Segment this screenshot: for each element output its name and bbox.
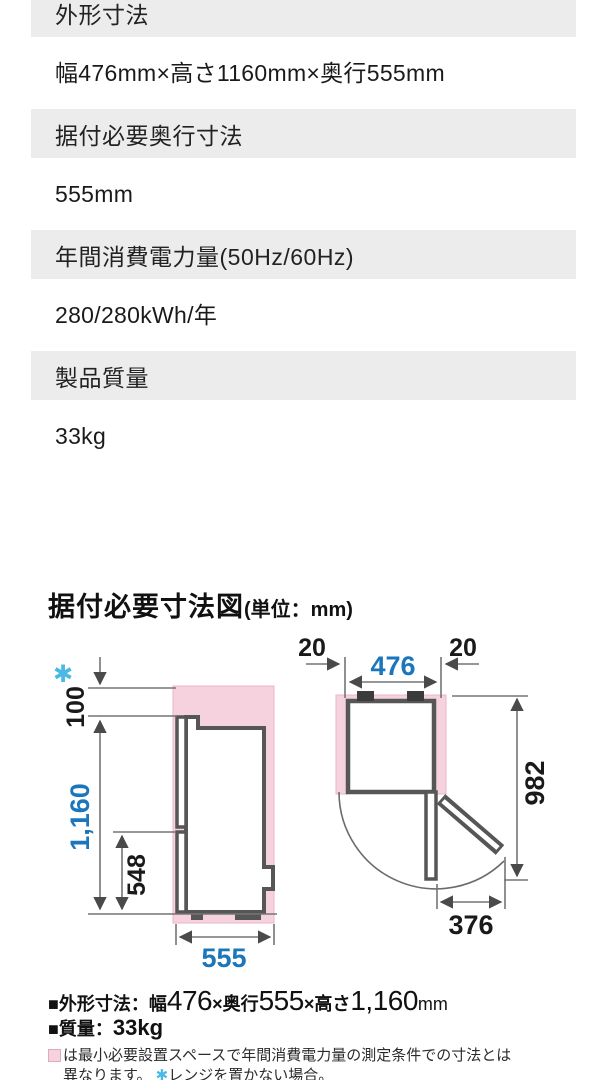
footer-dim-label: ■外形寸法：幅 [48,990,167,1016]
diagram-title: 据付必要寸法図 (単位：mm) [0,585,607,622]
fridge-top-cabinet [348,701,434,792]
fridge-side-door-upper [177,717,186,827]
dim-label-20-right: 20 [449,634,477,662]
footer-dim-sep2: ×高さ [304,990,351,1016]
diagram-footer: ■外形寸法：幅476×奥行555×高さ1,160mm ■質量：33kg は最小必… [0,985,607,1080]
spec-label-install-depth: 据付必要奥行寸法 [31,109,576,158]
rear-spacer-left [357,691,374,701]
note-asterisk: ✱ [156,1067,169,1080]
spec-row: 年間消費電力量(50Hz/60Hz) 280/280kWh/年 [0,230,607,351]
door-open-90 [426,792,436,879]
pink-legend-swatch [48,1049,61,1062]
footer-dim-unit: mm [418,994,448,1015]
dim-label-548: 548 [123,854,151,896]
note-line1: は最小必要設置スペースで年間消費電力量の測定条件での寸法とは [63,1047,511,1064]
note-line2-post: レンジを置かない場合。 [168,1067,333,1080]
door-open-135-inner [443,801,498,848]
footer-dimensions: ■外形寸法：幅476×奥行555×高さ1,160mm [48,985,607,1015]
footer-dim-sep1: ×奥行 [212,990,259,1016]
dim-label-376: 376 [448,910,493,940]
spec-table: 外形寸法 幅476mm×高さ1160mm×奥行555mm 据付必要奥行寸法 55… [0,0,607,472]
top-view: 20 20 476 982 376 [298,634,550,940]
spec-row: 外形寸法 幅476mm×高さ1160mm×奥行555mm [0,0,607,109]
footer-dim-depth: 555 [259,985,304,1017]
rear-spacer-right [407,691,424,701]
footer-dim-height: 1,160 [350,985,418,1017]
footer-weight: ■質量：33kg [48,1015,607,1042]
fridge-side-door-lower [177,832,186,912]
dim-label-555: 555 [201,943,246,973]
diagram-title-text: 据付必要寸法図 [48,585,244,624]
fridge-foot-front [191,910,203,920]
spec-value-energy: 280/280kWh/年 [0,279,607,351]
product-spec-page: 外形寸法 幅476mm×高さ1160mm×奥行555mm 据付必要奥行寸法 55… [0,0,607,1080]
spec-label-dimensions: 外形寸法 [31,0,576,37]
footer-note: は最小必要設置スペースで年間消費電力量の測定条件での寸法とは 異なります。 ✱レ… [48,1046,607,1080]
installation-diagram: ✱ 100 1,160 548 555 [0,631,607,981]
spec-row: 製品質量 33kg [0,351,607,472]
footer-weight-label: ■質量： [48,1015,113,1041]
dim-label-476: 476 [370,651,415,681]
dim-label-1160: 1,160 [65,783,95,851]
asterisk-mark: ✱ [53,661,73,688]
note-line2-pre: 異なります。 [63,1067,156,1080]
side-view: ✱ 100 1,160 548 555 [53,657,277,973]
dim-label-20-left: 20 [298,634,326,662]
dim-label-100: 100 [62,686,90,728]
fridge-side-cabinet [186,717,273,912]
spec-value-weight: 33kg [0,400,607,472]
spec-label-energy: 年間消費電力量(50Hz/60Hz) [31,230,576,279]
footer-weight-value: 33kg [113,1015,163,1041]
spec-label-weight: 製品質量 [31,351,576,400]
spec-value-install-depth: 555mm [0,158,607,230]
dim-label-982: 982 [520,760,550,805]
footer-dim-width: 476 [167,985,212,1017]
spec-row: 据付必要奥行寸法 555mm [0,109,607,230]
spec-value-dimensions: 幅476mm×高さ1160mm×奥行555mm [0,37,607,109]
diagram-title-unit: (単位：mm) [244,593,353,622]
footer-note-text: は最小必要設置スペースで年間消費電力量の測定条件での寸法とは 異なります。 ✱レ… [63,1046,511,1080]
fridge-foot-rear [235,910,261,920]
